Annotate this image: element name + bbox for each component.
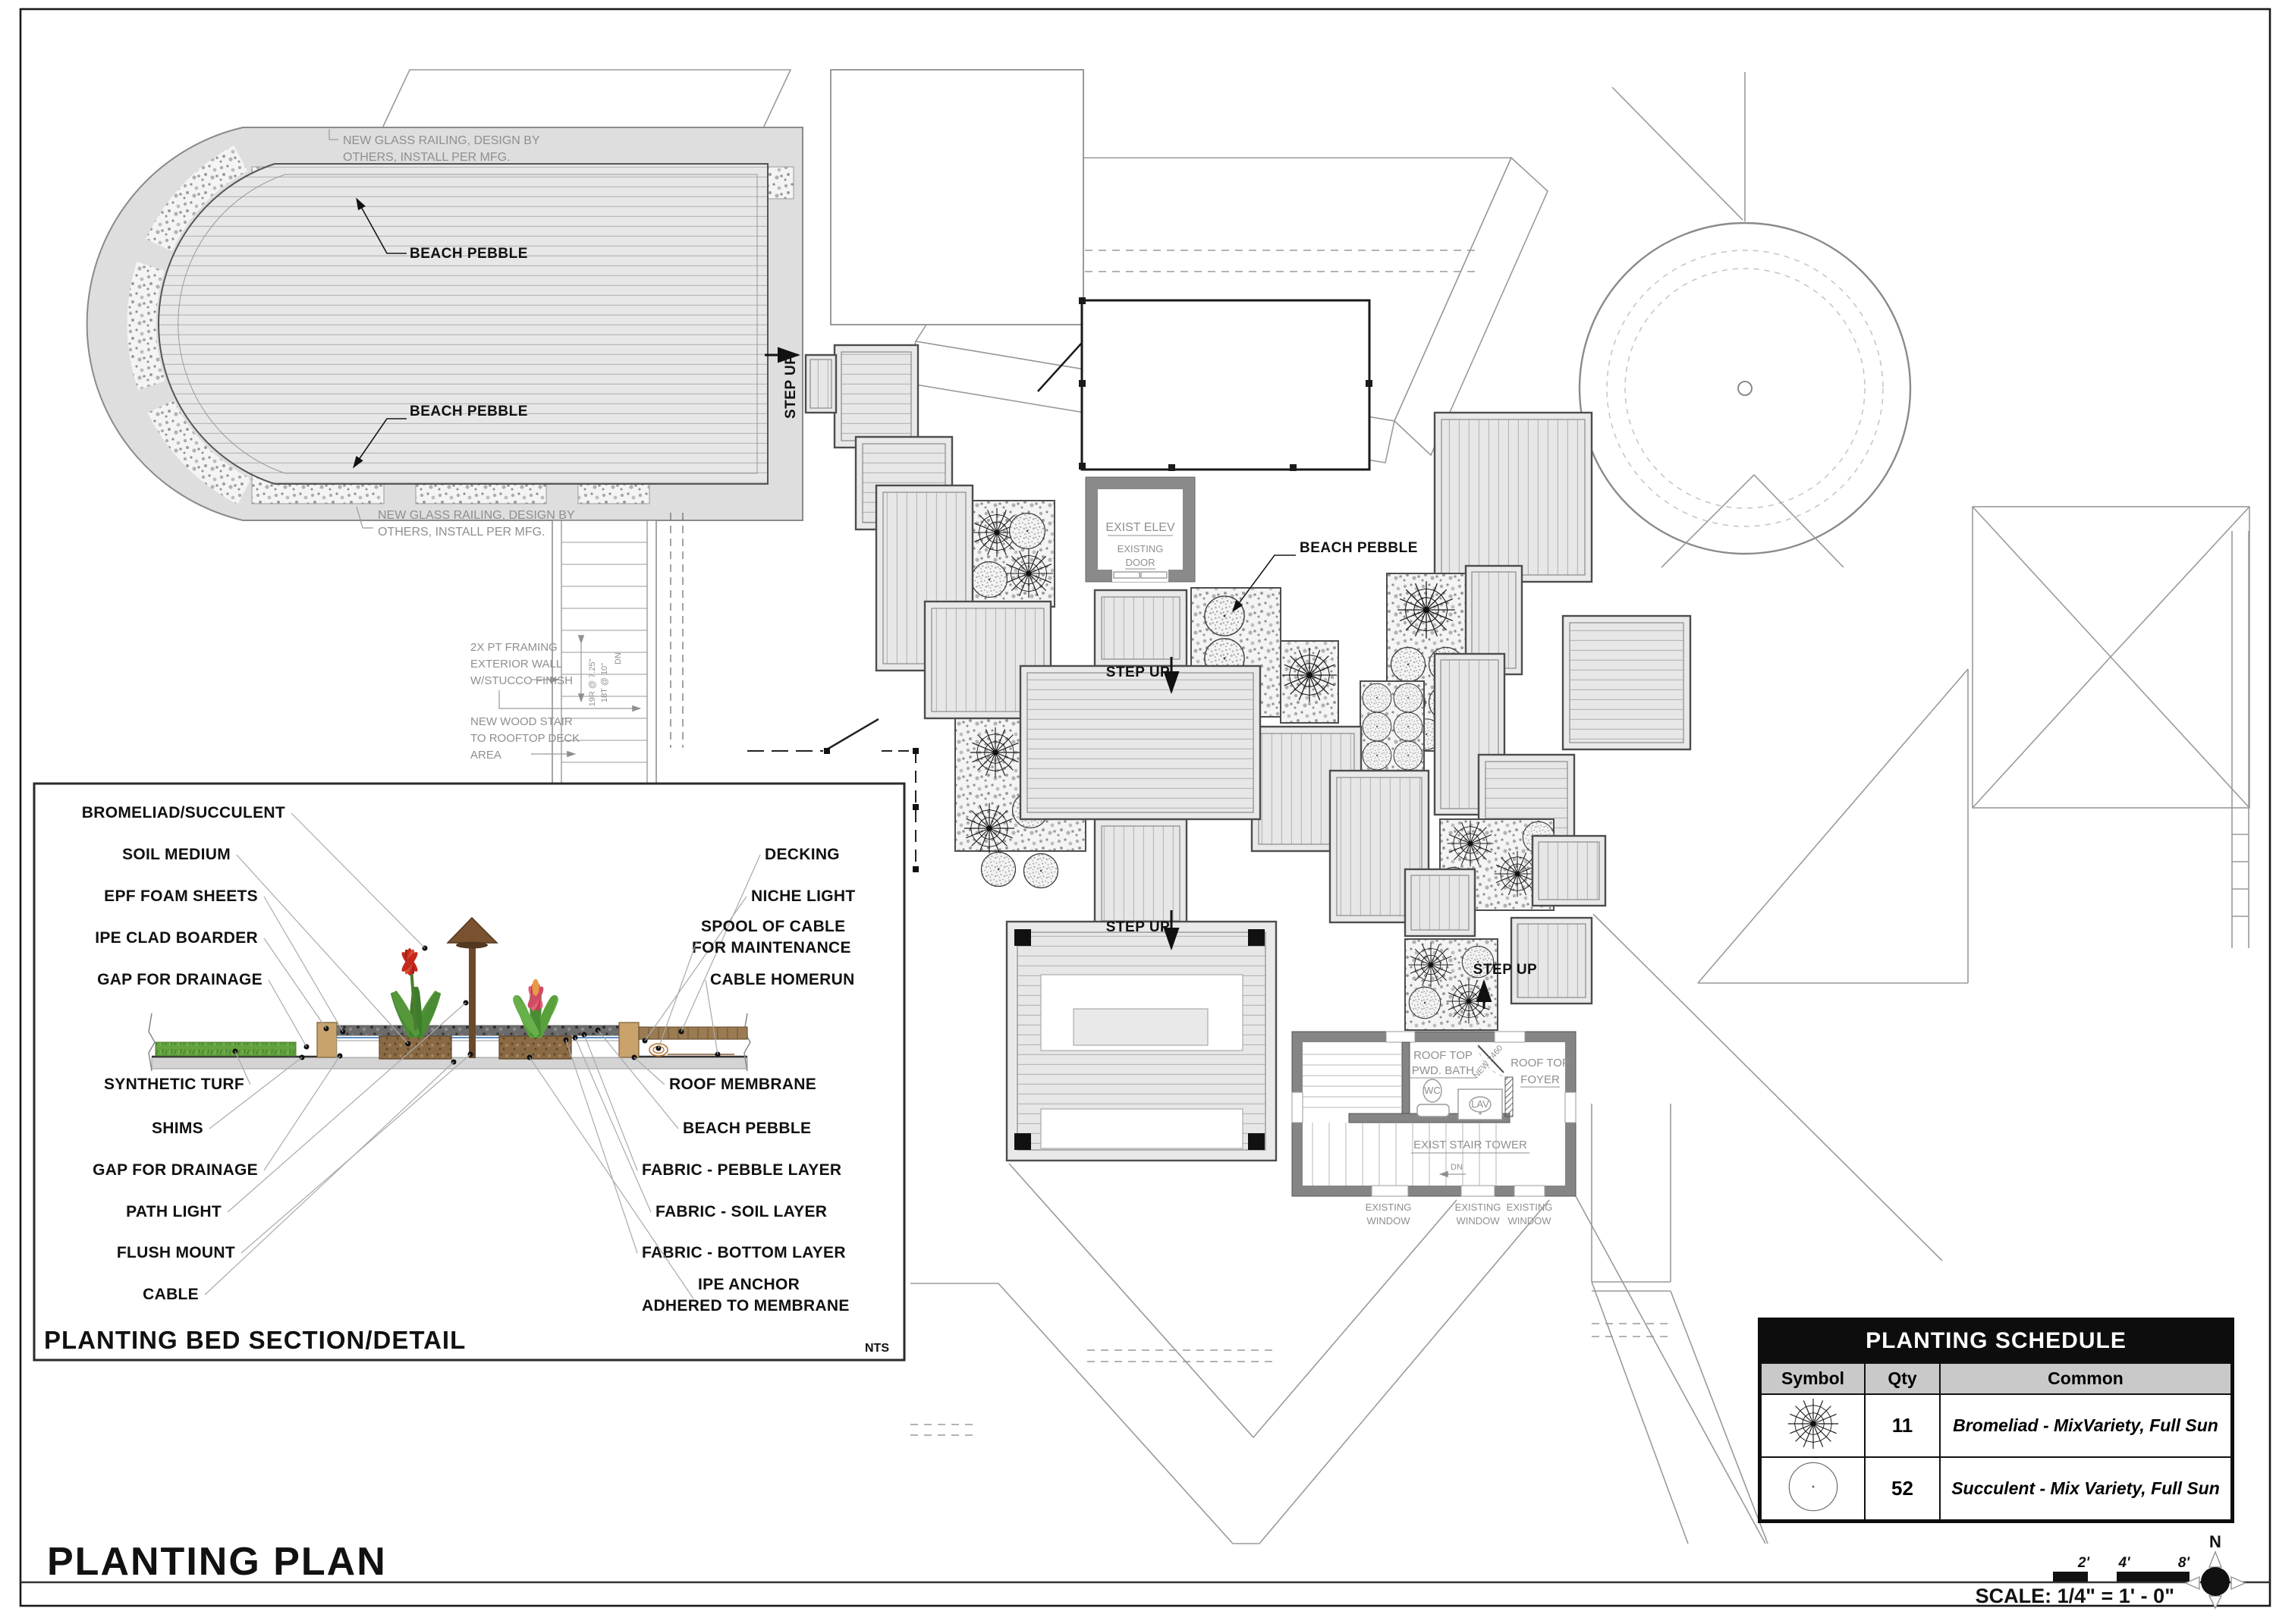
svg-text:SYNTHETIC TURF: SYNTHETIC TURF [104, 1076, 244, 1093]
deck-tile [1533, 836, 1605, 906]
svg-text:EXISTING: EXISTING [1455, 1202, 1501, 1213]
svg-text:DOOR: DOOR [1126, 557, 1155, 568]
svg-text:GAP FOR DRAINAGE: GAP FOR DRAINAGE [93, 1161, 258, 1179]
succulent-symbol-cell [1761, 1457, 1865, 1520]
svg-text:DECKING: DECKING [765, 846, 840, 863]
svg-text:BROMELIAD/SUCCULENT: BROMELIAD/SUCCULENT [82, 804, 285, 821]
svg-text:CABLE: CABLE [143, 1286, 199, 1303]
svg-text:8': 8' [2178, 1555, 2191, 1571]
tower-dn-label: DN [1451, 1163, 1463, 1172]
framing-note: 2X PT FRAMING [470, 641, 558, 654]
svg-text:FABRIC - BOTTOM LAYER: FABRIC - BOTTOM LAYER [642, 1244, 846, 1261]
north-label: N [2209, 1532, 2221, 1551]
step-up-label: STEP UP [1106, 919, 1170, 935]
deck-tile [1511, 918, 1592, 1004]
stair-risers-note: 19R @ 7.25" [588, 659, 597, 707]
svg-text:EXISTING: EXISTING [1366, 1202, 1412, 1213]
beach-pebble-label: BEACH PEBBLE [1300, 540, 1418, 556]
bromeliad-symbol-cell [1761, 1394, 1865, 1457]
svg-text:SOIL MEDIUM: SOIL MEDIUM [122, 846, 231, 863]
svg-text:NICHE LIGHT: NICHE LIGHT [751, 887, 855, 905]
svg-text:W/STUCCO FINISH: W/STUCCO FINISH [470, 674, 573, 687]
deck-tile [835, 345, 918, 448]
svg-text:ROOF MEMBRANE: ROOF MEMBRANE [669, 1076, 816, 1093]
step-up-label: STEP UP [783, 355, 799, 419]
schedule-title: PLANTING SCHEDULE [1760, 1320, 2232, 1362]
planting-bed [1360, 681, 1424, 772]
deck-tile [1095, 590, 1187, 666]
new-structure-outline [1038, 297, 1372, 471]
svg-text:OTHERS, INSTALL PER MFG.: OTHERS, INSTALL PER MFG. [378, 526, 545, 539]
svg-text:ADHERED TO MEMBRANE: ADHERED TO MEMBRANE [642, 1297, 850, 1315]
wc-label: WC [1424, 1085, 1441, 1096]
qty-value: 11 [1865, 1394, 1940, 1457]
lav-label: LAV [1471, 1098, 1489, 1110]
decking-board [639, 1027, 747, 1039]
sheet-title: PLANTING PLAN [47, 1540, 387, 1584]
deck-tile [806, 355, 836, 413]
svg-text:EPF FOAM SHEETS: EPF FOAM SHEETS [104, 887, 258, 905]
svg-text:GAP FOR DRAINAGE: GAP FOR DRAINAGE [97, 971, 262, 988]
plan-sheet: NEW GLASS RAILING, DESIGN BY OTHERS, INS… [0, 0, 2276, 1624]
svg-text:WINDOW: WINDOW [1366, 1215, 1410, 1227]
schedule-header-symbol: Symbol [1761, 1363, 1865, 1394]
rooftop-deck: NEW GLASS RAILING, DESIGN BY OTHERS, INS… [87, 127, 803, 539]
step-up-label: STEP UP [1473, 962, 1537, 978]
deck-tile [1095, 819, 1187, 928]
succulent-symbol [1784, 1459, 1842, 1514]
fire-pit-deck [1007, 922, 1276, 1161]
step-up-label: STEP UP [1106, 664, 1170, 680]
svg-text:SPOOL OF CABLE: SPOOL OF CABLE [701, 918, 846, 935]
stair-treads-note: 18T @ 10" [600, 663, 609, 702]
svg-text:WINDOW: WINDOW [1507, 1215, 1551, 1227]
soil-box [499, 1036, 571, 1059]
detail-inset: BROMELIAD/SUCCULENT SOIL MEDIUM EPF FOAM… [34, 784, 904, 1360]
svg-text:EXTERIOR WALL: EXTERIOR WALL [470, 658, 562, 671]
deck-tile [1435, 413, 1592, 582]
nts-label: NTS [865, 1342, 889, 1355]
schedule-header-common: Common [1940, 1363, 2231, 1394]
table-row: 52 Succulent - Mix Variety, Full Sun [1761, 1457, 2231, 1520]
scale-label: SCALE: 1/4" = 1' - 0" [1976, 1585, 2174, 1607]
svg-text:AREA: AREA [470, 749, 501, 762]
synthetic-turf [156, 1042, 296, 1056]
svg-text:BEACH PEBBLE: BEACH PEBBLE [683, 1120, 811, 1137]
svg-text:WINDOW: WINDOW [1456, 1215, 1500, 1227]
svg-text:IPE CLAD BOARDER: IPE CLAD BOARDER [95, 929, 258, 947]
elevator: EXIST ELEV EXISTING DOOR [1086, 477, 1195, 582]
exist-stair-tower-label: EXIST STAIR TOWER [1413, 1139, 1527, 1151]
common-name: Succulent - Mix Variety, Full Sun [1940, 1457, 2231, 1520]
pebble-layer [337, 1026, 619, 1035]
deck-tile [1563, 616, 1690, 749]
svg-text:OTHERS, INSTALL PER MFG.: OTHERS, INSTALL PER MFG. [343, 151, 510, 164]
building-block [831, 70, 1083, 325]
svg-text:PWD. BATH: PWD. BATH [1412, 1064, 1474, 1077]
svg-text:PATH LIGHT: PATH LIGHT [126, 1203, 222, 1220]
svg-text:2': 2' [2077, 1555, 2091, 1571]
planting-schedule-table: PLANTING SCHEDULE Symbol Qty Common 11 B… [1758, 1318, 2234, 1523]
svg-text:4': 4' [2117, 1555, 2131, 1571]
svg-text:FOR MAINTENANCE: FOR MAINTENANCE [692, 939, 851, 956]
beach-pebble-label: BEACH PEBBLE [410, 404, 528, 419]
svg-text:FABRIC - PEBBLE LAYER: FABRIC - PEBBLE LAYER [642, 1161, 841, 1179]
deck-tile [1405, 869, 1475, 936]
qty-value: 52 [1865, 1457, 1940, 1520]
planting-bed [970, 501, 1055, 607]
section-title: PLANTING BED SECTION/DETAIL [44, 1326, 466, 1354]
planting-bed [1281, 641, 1338, 723]
rooftop-bath-label: ROOF TOP [1413, 1049, 1473, 1062]
schedule-header-row: Symbol Qty Common [1761, 1363, 2231, 1394]
svg-text:IPE ANCHOR: IPE ANCHOR [698, 1276, 800, 1293]
svg-text:FABRIC - SOIL LAYER: FABRIC - SOIL LAYER [655, 1203, 827, 1220]
stair-dn-label: DN [614, 652, 623, 664]
wood-stair-note: NEW WOOD STAIR [470, 715, 573, 728]
svg-text:TO ROOFTOP DECK: TO ROOFTOP DECK [470, 732, 580, 745]
deck-tile [1020, 666, 1260, 819]
svg-text:SHIMS: SHIMS [152, 1120, 203, 1137]
svg-text:CABLE HOMERUN: CABLE HOMERUN [710, 971, 855, 988]
svg-text:FOYER: FOYER [1520, 1073, 1560, 1086]
existing-door-label: EXISTING [1118, 543, 1164, 554]
table-row: 11 Bromeliad - MixVariety, Full Sun [1761, 1394, 2231, 1457]
glass-railing-note-bottom: NEW GLASS RAILING, DESIGN BY [378, 509, 575, 522]
svg-text:EXISTING: EXISTING [1507, 1202, 1553, 1213]
schedule-header-qty: Qty [1865, 1363, 1940, 1394]
beach-pebble-label: BEACH PEBBLE [410, 246, 528, 262]
ipe-border-right [619, 1022, 639, 1057]
rooftop-foyer-label: ROOF TOP [1511, 1057, 1570, 1070]
exist-elev-label: EXIST ELEV [1105, 521, 1175, 534]
common-name: Bromeliad - MixVariety, Full Sun [1940, 1394, 2231, 1457]
bromeliad-symbol [1784, 1396, 1842, 1451]
glass-railing-note-top: NEW GLASS RAILING, DESIGN BY [343, 134, 540, 147]
svg-text:FLUSH MOUNT: FLUSH MOUNT [117, 1244, 235, 1261]
